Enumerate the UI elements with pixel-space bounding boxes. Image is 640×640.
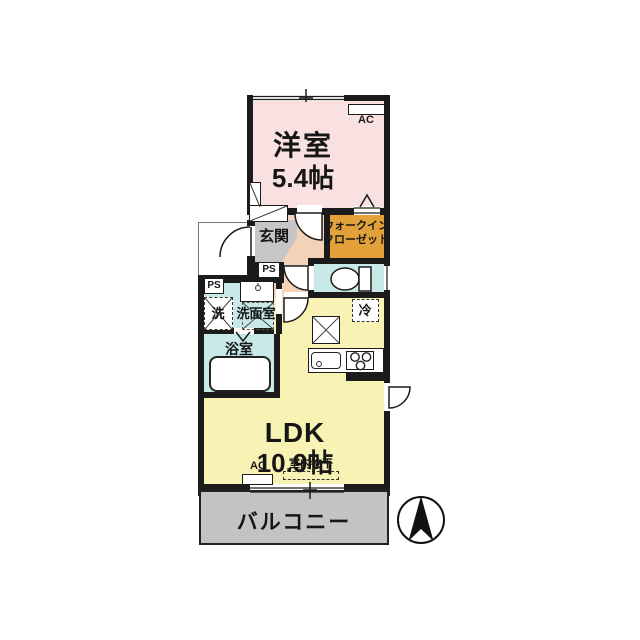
- door-gap-toilet: [308, 266, 314, 290]
- washbasin-counter: [240, 281, 274, 302]
- label-ldk: LDK: [265, 419, 326, 447]
- label-balcony: バルコニー: [237, 512, 352, 533]
- label-genkan: 玄関: [259, 229, 289, 244]
- label-fridge: 冷: [358, 304, 371, 317]
- door-gap-washroom: [276, 289, 282, 314]
- window-western-top: [253, 95, 344, 101]
- storage-box-horizontal: [249, 205, 288, 222]
- label-western-size: 5.4帖: [272, 165, 334, 191]
- door-gap-wic: [354, 206, 380, 215]
- label-wic-line1: ウォークイン: [323, 221, 389, 232]
- kitchen-stove: [346, 351, 374, 370]
- label-ps-upper: PS: [262, 265, 275, 275]
- label-ac-ldk: AC: [250, 461, 266, 472]
- kitchen-sink: [311, 352, 341, 369]
- kitchen-cupboard: [312, 316, 340, 344]
- door-gap-ldk: [284, 292, 308, 298]
- door-gap-entrance: [247, 226, 255, 256]
- door-arc-side: [389, 387, 410, 408]
- label-washer: 洗: [211, 307, 224, 320]
- door-gap-side: [384, 383, 390, 411]
- label-ac-western: AC: [358, 115, 374, 126]
- wall-toilet-bottom: [308, 292, 390, 298]
- label-wic-line2: クローゼット: [323, 235, 389, 246]
- label-ps-lower: PS: [207, 281, 220, 291]
- window-toilet: [384, 266, 390, 290]
- label-washroom: 洗面室: [236, 307, 275, 320]
- north-arrow-icon: [398, 496, 444, 543]
- kitchen-counter-wall: [346, 372, 384, 381]
- label-bath: 浴室: [225, 342, 253, 356]
- door-gap-western: [297, 205, 322, 216]
- wall-wic-bottom: [308, 258, 384, 264]
- label-western-room: 洋室: [273, 132, 333, 160]
- porch-outline: [198, 222, 247, 275]
- wall-bath-right: [274, 334, 280, 398]
- wall-western-bottom-c: [380, 208, 384, 215]
- floor-plan: 洋室 5.4帖 AC 玄関 ウォークイン クローゼット PS PS 洗 洗面室 …: [0, 0, 640, 640]
- room-toilet: [314, 264, 384, 292]
- label-indoor-drying: 室内物干: [289, 459, 333, 470]
- bathtub: [209, 356, 271, 392]
- wall-bath-bottom: [198, 392, 280, 398]
